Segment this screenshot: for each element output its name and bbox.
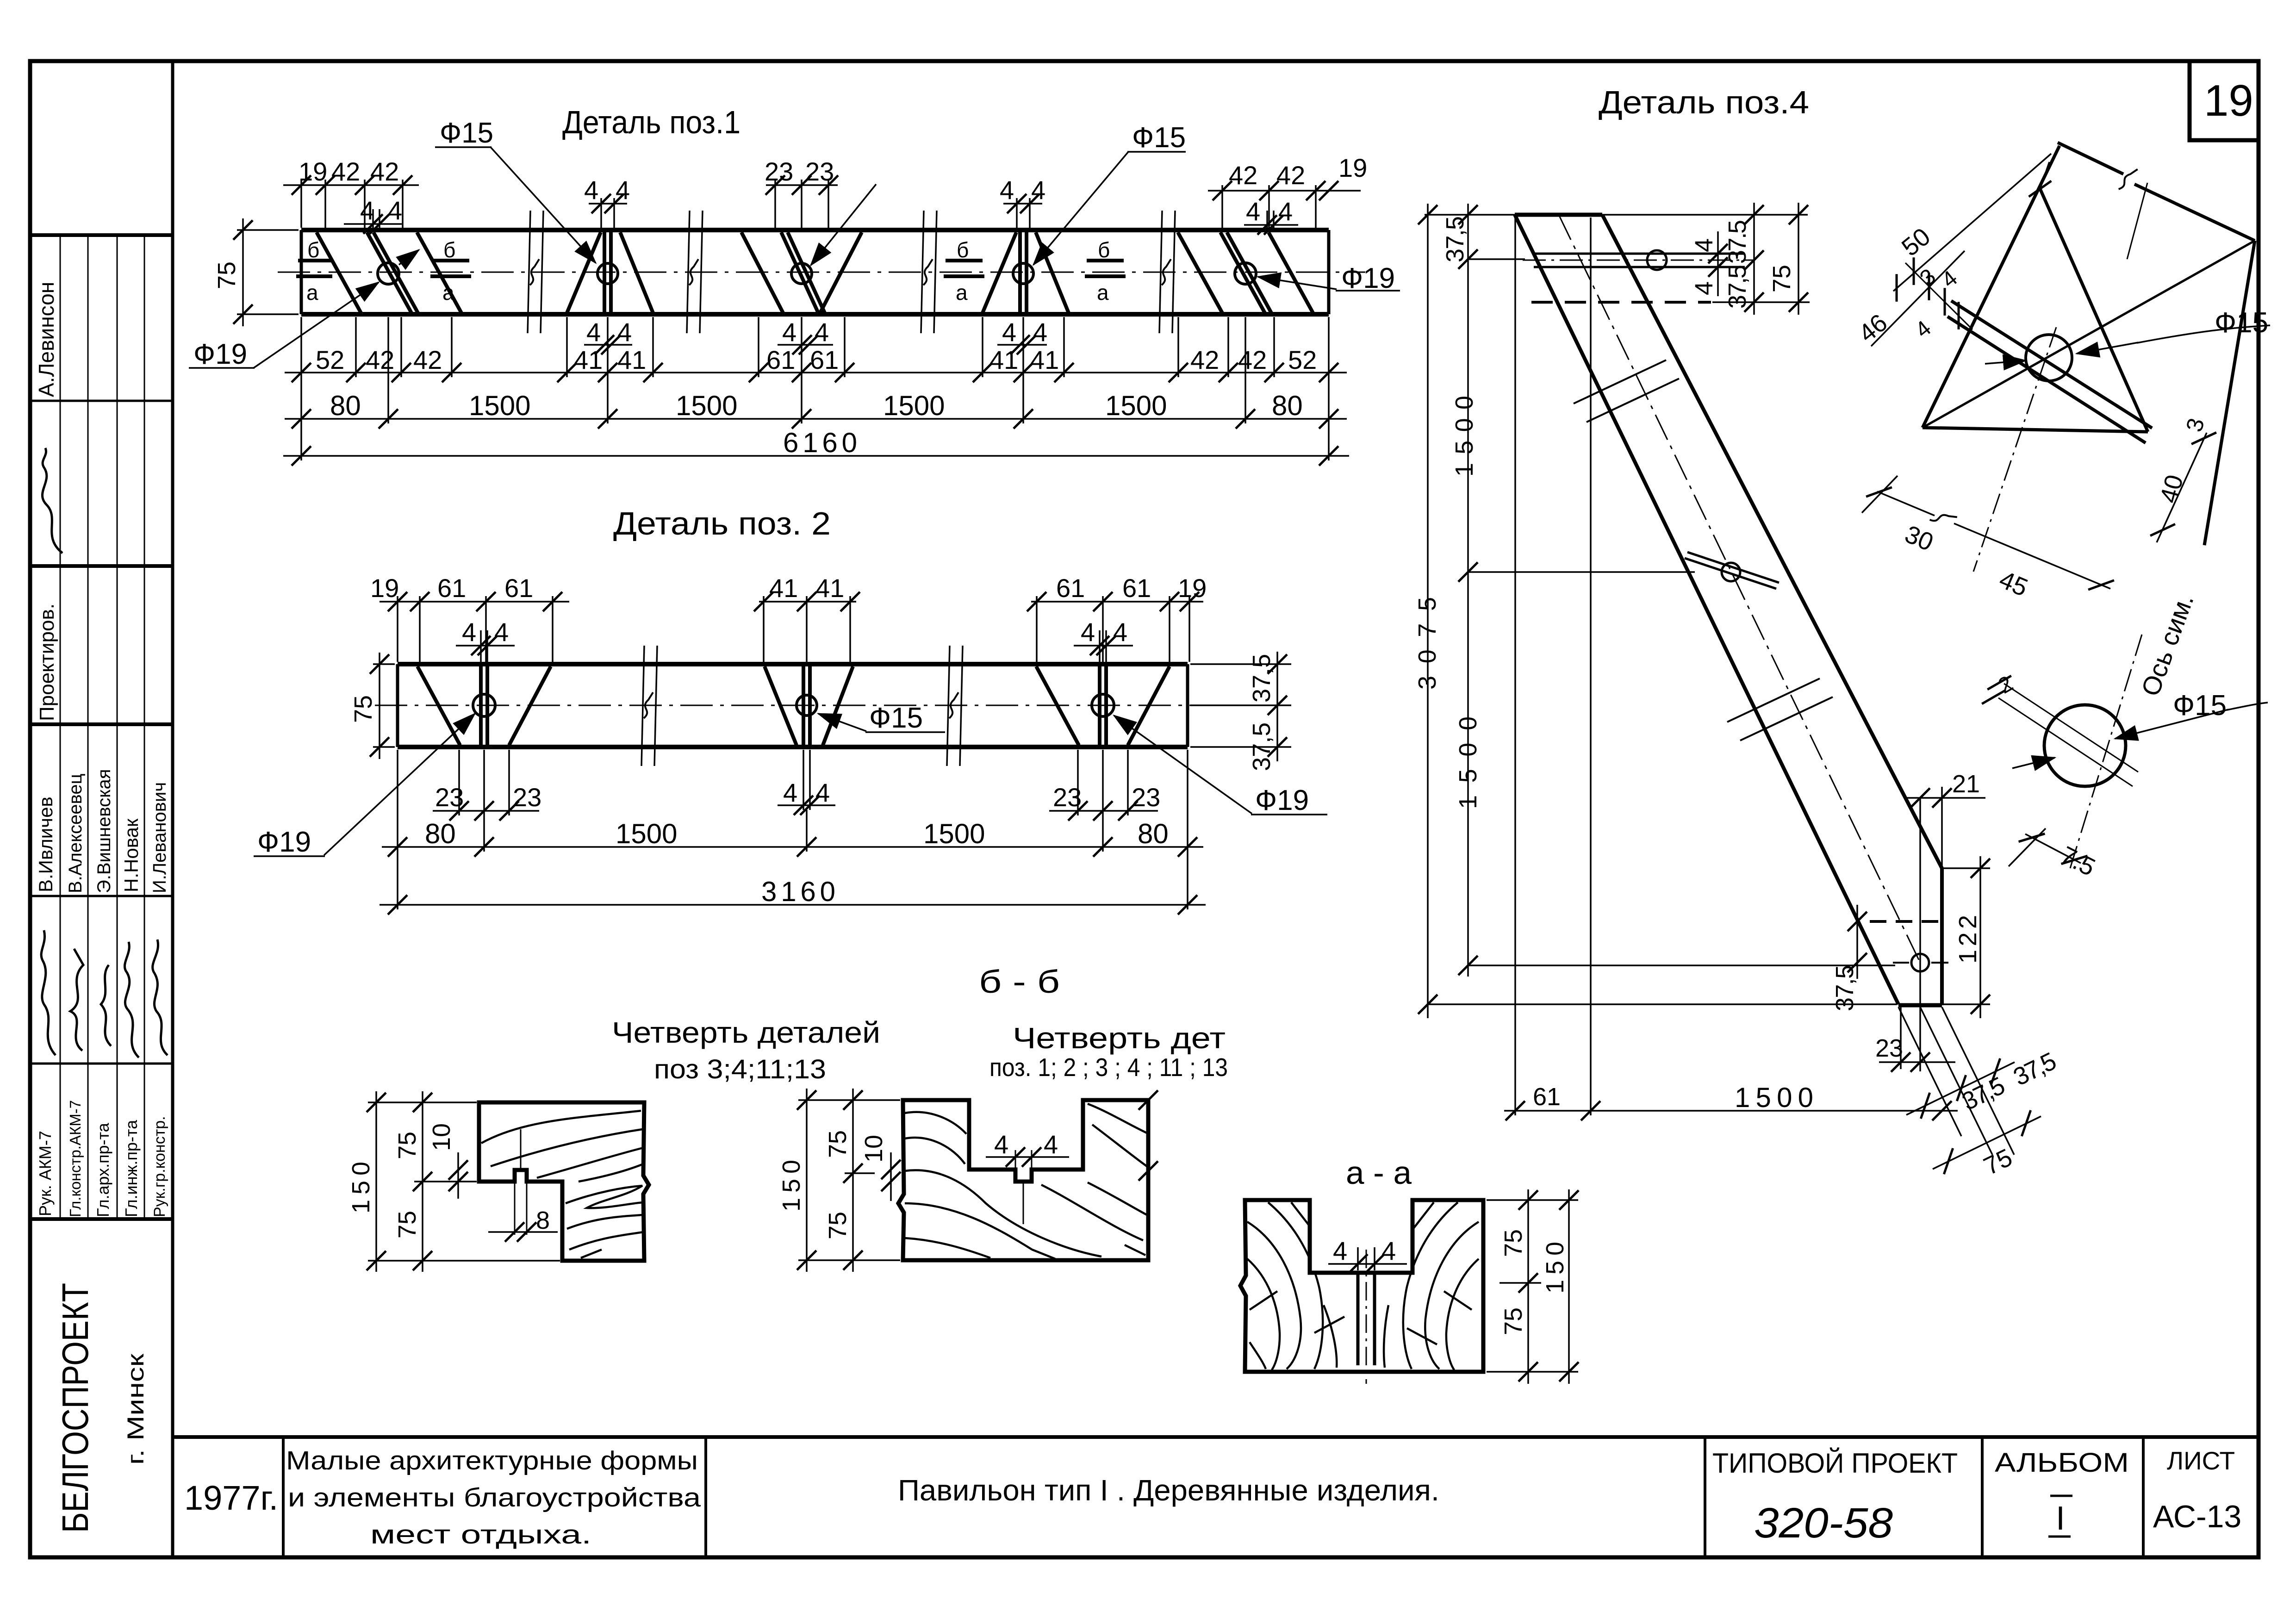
svg-text:б: б <box>1098 238 1110 262</box>
svg-text:Гл.инж.пр-та: Гл.инж.пр-та <box>122 1120 141 1217</box>
svg-text:80: 80 <box>425 818 456 849</box>
svg-text:б: б <box>443 238 455 262</box>
svg-text:23: 23 <box>1053 783 1082 812</box>
svg-text:23: 23 <box>435 783 464 812</box>
svg-text:37.5: 37.5 <box>1724 220 1751 264</box>
svg-text:23: 23 <box>513 783 541 812</box>
svg-text:4: 4 <box>1081 617 1095 647</box>
svg-text:и элементы благоустройства: и элементы благоустройства <box>288 1483 701 1512</box>
svg-text:мест отдыха.: мест отдыха. <box>370 1520 591 1549</box>
svg-text:42: 42 <box>1276 161 1305 190</box>
svg-text:42: 42 <box>1238 345 1267 374</box>
svg-text:Ф19: Ф19 <box>1341 262 1395 294</box>
svg-text:АЛЬБОМ: АЛЬБОМ <box>1995 1448 2129 1478</box>
svg-text:75: 75 <box>393 1211 421 1238</box>
svg-text:42: 42 <box>1190 345 1219 374</box>
svg-text:1500: 1500 <box>616 818 677 849</box>
svg-text:75: 75 <box>824 1130 852 1158</box>
svg-text:10: 10 <box>860 1135 888 1163</box>
svg-text:4: 4 <box>1278 197 1293 226</box>
svg-text:б: б <box>307 238 319 262</box>
svg-text:37,5: 37,5 <box>1248 722 1276 771</box>
svg-text:Ф19: Ф19 <box>257 826 311 858</box>
svg-text:Деталь поз.4: Деталь поз.4 <box>1599 84 1809 120</box>
svg-text:19: 19 <box>370 573 399 603</box>
svg-text:4: 4 <box>584 175 598 205</box>
svg-text:4: 4 <box>994 1130 1008 1159</box>
svg-text:61: 61 <box>766 345 795 374</box>
svg-text:Ф19: Ф19 <box>1255 784 1309 816</box>
svg-text:4: 4 <box>1690 238 1718 252</box>
svg-text:75: 75 <box>349 695 377 723</box>
svg-text:19: 19 <box>299 157 327 186</box>
svg-text:поз 3;4;11;13: поз 3;4;11;13 <box>654 1054 826 1084</box>
svg-text:Деталь поз. 2: Деталь поз. 2 <box>613 505 831 541</box>
svg-text:I: I <box>2056 1500 2065 1537</box>
svg-text:41: 41 <box>769 573 798 603</box>
svg-text:4: 4 <box>586 317 601 347</box>
svg-text:4: 4 <box>1246 197 1260 226</box>
svg-text:Ф15: Ф15 <box>2173 690 2227 722</box>
svg-text:4: 4 <box>494 617 509 647</box>
svg-text:Э.Вишневская: Э.Вишневская <box>94 769 114 893</box>
svg-text:И.Леванович: И.Леванович <box>149 782 170 893</box>
svg-text:42: 42 <box>331 157 360 186</box>
svg-text:41: 41 <box>1030 345 1059 374</box>
svg-text:41: 41 <box>815 573 844 603</box>
svg-text:4: 4 <box>1113 617 1127 647</box>
svg-text:19: 19 <box>1178 573 1207 603</box>
svg-text:61: 61 <box>1056 573 1085 603</box>
svg-text:а: а <box>306 280 318 305</box>
svg-text:Н.Новак: Н.Новак <box>120 818 142 892</box>
svg-text:А.Левинсон: А.Левинсон <box>34 282 58 397</box>
svg-text:Деталь поз.1: Деталь поз.1 <box>562 104 740 140</box>
svg-text:4: 4 <box>782 317 796 347</box>
svg-text:а - а: а - а <box>1346 1155 1412 1191</box>
svg-text:75: 75 <box>393 1132 421 1159</box>
svg-text:Павильон тип I . Деревянные и: Павильон тип I . Деревянные изделия. <box>898 1474 1439 1507</box>
svg-text:150: 150 <box>1541 1242 1569 1294</box>
svg-text:37,5: 37,5 <box>1831 965 1859 1011</box>
svg-text:23: 23 <box>1875 1034 1903 1062</box>
svg-text:21: 21 <box>1952 770 1980 798</box>
svg-text:4: 4 <box>1690 281 1718 295</box>
svg-text:4: 4 <box>617 317 632 347</box>
svg-text:а: а <box>956 280 968 305</box>
svg-text:52: 52 <box>316 345 344 374</box>
svg-text:БЕЛГОСПРОЕКТ: БЕЛГОСПРОЕКТ <box>55 1283 96 1533</box>
svg-text:61: 61 <box>437 573 466 603</box>
svg-text:4: 4 <box>1044 1130 1058 1159</box>
svg-text:В.Ивличев: В.Ивличев <box>35 796 56 892</box>
svg-text:Малые архитектурные формы: Малые архитектурные формы <box>286 1446 698 1475</box>
svg-text:4: 4 <box>783 778 797 807</box>
svg-text:37,5: 37,5 <box>1441 216 1469 262</box>
svg-text:1500: 1500 <box>923 818 985 849</box>
svg-text:Гл.констр.АКМ-7: Гл.констр.АКМ-7 <box>67 1100 84 1217</box>
svg-text:80: 80 <box>1272 390 1303 421</box>
svg-text:4: 4 <box>388 196 402 225</box>
svg-text:42: 42 <box>413 345 442 374</box>
svg-text:19: 19 <box>1338 153 1367 182</box>
svg-text:75: 75 <box>213 261 241 289</box>
svg-text:80: 80 <box>330 390 361 421</box>
svg-text:41: 41 <box>989 345 1018 374</box>
svg-text:320-58: 320-58 <box>1754 1500 1893 1547</box>
svg-text:б - б: б - б <box>979 964 1060 1000</box>
svg-text:1500: 1500 <box>883 390 945 421</box>
svg-text:4: 4 <box>1002 317 1016 347</box>
svg-text:23: 23 <box>805 157 834 186</box>
svg-text:4: 4 <box>815 317 829 347</box>
svg-text:23: 23 <box>765 157 793 186</box>
svg-text:42: 42 <box>370 157 399 186</box>
svg-text:61: 61 <box>1533 1083 1561 1111</box>
svg-text:Рук. АКМ-7: Рук. АКМ-7 <box>36 1131 55 1216</box>
svg-text:Проектиров.: Проектиров. <box>36 604 58 721</box>
svg-text:4: 4 <box>462 617 476 647</box>
svg-text:В.Алексеевец: В.Алексеевец <box>65 774 86 893</box>
svg-text:75: 75 <box>1500 1229 1527 1257</box>
svg-text:а: а <box>1097 280 1109 305</box>
svg-text:75: 75 <box>824 1212 852 1239</box>
svg-text:41: 41 <box>574 345 603 374</box>
svg-text:1977г.: 1977г. <box>184 1479 278 1517</box>
svg-text:4: 4 <box>815 778 830 807</box>
svg-text:ЛИСТ: ЛИСТ <box>2167 1446 2235 1475</box>
svg-text:Ф15: Ф15 <box>869 702 923 734</box>
svg-text:37,5: 37,5 <box>1724 265 1751 309</box>
svg-text:23: 23 <box>1132 783 1160 812</box>
svg-text:42: 42 <box>366 345 394 374</box>
svg-text:Ф19: Ф19 <box>193 338 247 370</box>
svg-text:4: 4 <box>1381 1236 1396 1265</box>
svg-text:Ф15: Ф15 <box>440 117 493 149</box>
svg-text:1500: 1500 <box>469 390 530 421</box>
svg-text:1500: 1500 <box>676 390 737 421</box>
svg-text:75: 75 <box>1768 265 1796 292</box>
svg-text:61: 61 <box>810 345 839 374</box>
svg-text:8: 8 <box>536 1207 550 1234</box>
svg-text:4: 4 <box>616 175 630 205</box>
svg-text:4: 4 <box>1033 317 1047 347</box>
svg-text:Ф15: Ф15 <box>1132 122 1186 154</box>
svg-text:150: 150 <box>778 1160 805 1212</box>
svg-text:4: 4 <box>1031 175 1045 205</box>
svg-text:19: 19 <box>2204 76 2253 125</box>
svg-text:Гл.арх.пр-та: Гл.арх.пр-та <box>93 1122 112 1217</box>
svg-text:Четверть деталей: Четверть деталей <box>612 1016 880 1049</box>
svg-text:4: 4 <box>1000 175 1014 205</box>
svg-text:б: б <box>957 238 969 262</box>
svg-text:ТИПОВОЙ ПРОЕКТ: ТИПОВОЙ ПРОЕКТ <box>1712 1448 1958 1479</box>
svg-text:75: 75 <box>1500 1307 1527 1335</box>
svg-text:Четверть дет: Четверть дет <box>1013 1021 1226 1055</box>
svg-text:122: 122 <box>1954 915 1982 964</box>
svg-text:52: 52 <box>1288 345 1317 374</box>
svg-text:61: 61 <box>1122 573 1151 603</box>
svg-text:АС-13: АС-13 <box>2153 1499 2241 1534</box>
svg-text:4: 4 <box>360 196 374 225</box>
svg-text:Рук.гр.констр.: Рук.гр.констр. <box>151 1116 168 1217</box>
svg-text:61: 61 <box>504 573 533 603</box>
svg-text:г. Минск: г. Минск <box>123 1353 149 1465</box>
svg-text:41: 41 <box>617 345 646 374</box>
svg-text:37,5: 37,5 <box>1248 654 1276 703</box>
svg-text:4: 4 <box>1333 1236 1347 1265</box>
svg-text:1500: 1500 <box>1105 390 1167 421</box>
svg-text:10: 10 <box>428 1123 455 1151</box>
svg-text:150: 150 <box>347 1162 375 1213</box>
svg-text:поз. 1; 2 ; 3 ; 4 ; 11 ; 13: поз. 1; 2 ; 3 ; 4 ; 11 ; 13 <box>989 1053 1228 1082</box>
svg-text:42: 42 <box>1229 161 1257 190</box>
svg-text:а: а <box>442 280 454 305</box>
svg-text:80: 80 <box>1138 818 1169 849</box>
svg-text:Ф15: Ф15 <box>2215 307 2268 339</box>
